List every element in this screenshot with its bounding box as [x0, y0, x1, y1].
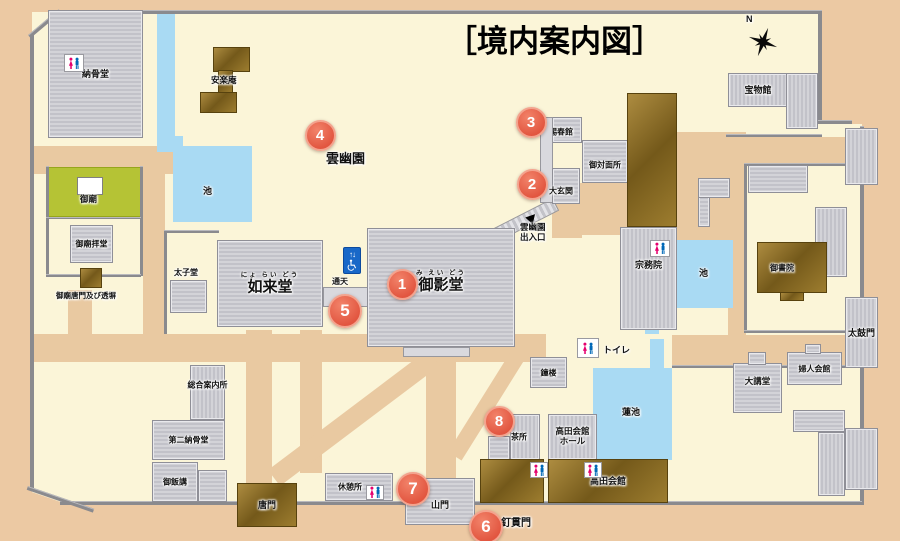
- label-compass-n: N: [746, 14, 753, 25]
- chadokoro-annex: [488, 436, 510, 460]
- pond-west: [173, 146, 252, 222]
- wall-west: [30, 34, 34, 489]
- kyukeisho-rest-area-label: 休憩所: [338, 482, 362, 491]
- takada-kaikan: 高田会館: [548, 459, 668, 503]
- fence-homotsukan: [726, 134, 822, 137]
- marker-2[interactable]: 2: [517, 169, 548, 200]
- marker-8[interactable]: 8: [484, 406, 515, 437]
- nokotsudo-label: 納骨堂: [82, 69, 109, 79]
- sogo-information: 総合案内所: [190, 365, 225, 420]
- daikodo-entry: [748, 352, 766, 365]
- marker-5[interactable]: 5: [328, 294, 362, 328]
- marker-3[interactable]: 3: [516, 107, 547, 138]
- label-kuginukimon: 釘貫門: [501, 518, 531, 530]
- palace-hall: [627, 93, 677, 227]
- toilet-icon-shumuin: [650, 240, 670, 257]
- daikodo: 大講堂: [733, 363, 782, 413]
- fujin-kaikan-entry: [805, 344, 821, 354]
- takada-kaikan-hall: 高田会館 ホール: [548, 414, 597, 460]
- label-pond-west: 池: [203, 186, 212, 197]
- chadokoro-label: 茶所: [511, 432, 527, 441]
- label-taishido: 太子堂: [174, 268, 198, 278]
- shishunkan: 賜春館: [552, 117, 582, 143]
- label-gobyo-karamon: 御廟唐門及び透塀: [56, 291, 116, 300]
- label-anrakuan: 安楽庵: [211, 75, 237, 85]
- fujin-kaikan: 婦人会館: [787, 352, 842, 385]
- elevator-icon: ↑↓: [343, 247, 361, 274]
- chadokoro: 茶所: [510, 414, 540, 460]
- daigenkan-label: 大玄関: [549, 186, 573, 195]
- se-gate: [845, 428, 878, 490]
- toilet-icon-takada: [584, 462, 602, 478]
- toilet-icon-standalone: [577, 338, 599, 358]
- gotaimensho-label: 御対面所: [589, 160, 621, 169]
- label-gobyo: 御廟: [80, 194, 97, 204]
- wall-top: [57, 10, 820, 14]
- gobyo-karamon-gate: [80, 268, 102, 288]
- gobyo-shrine: [77, 177, 103, 195]
- taikomon-gate-label: 太鼓門: [848, 327, 875, 337]
- goshoin-annex: [780, 292, 804, 301]
- goshoin-label: 御書院: [770, 263, 794, 272]
- nyoraido-label-text: 如来堂: [247, 279, 292, 296]
- mieido-label-text: 御影堂: [418, 277, 463, 294]
- daigenkan: 大玄関: [552, 168, 580, 204]
- toilet-icon-kyukeisho: [366, 485, 384, 500]
- se-annex-right: [818, 432, 845, 496]
- label-tsuten: 通天: [332, 277, 348, 287]
- gohanko-label: 御飯講: [163, 477, 187, 486]
- compass-icon: [744, 22, 782, 62]
- nyoraido: にょ らい どう如来堂: [217, 240, 323, 327]
- mieido-porch: [403, 347, 470, 357]
- label-unyuen-garden: 雲幽園: [326, 151, 365, 167]
- label-unyuen-exit: 雲幽園 出入口: [520, 222, 546, 242]
- nokotsudo: 納骨堂: [48, 10, 143, 138]
- marker-4[interactable]: 4: [305, 120, 336, 151]
- temple-grounds-map: ［境内案内図］ 納骨堂宝物館御廟拝堂にょ らい どう如来堂み えい どう御影堂賜…: [0, 0, 900, 541]
- page-title: ［境内案内図］: [446, 16, 663, 61]
- gobyo-worship-hall: 御廟拝堂: [70, 225, 113, 263]
- homotsukan-wing: [786, 73, 818, 129]
- gotaimensho: 御対面所: [582, 140, 628, 183]
- daini-nokotsudo-label: 第二納骨堂: [169, 435, 209, 444]
- sanmon-gate-label: 山門: [431, 499, 449, 509]
- lotus-channel: [650, 339, 664, 370]
- small-hall: [198, 470, 227, 502]
- label-pond-east: 池: [699, 268, 708, 279]
- takada-kaikan-hall-label: 高田会館 ホール: [555, 427, 589, 447]
- label-hasuike: 蓮池: [622, 407, 640, 418]
- daini-nokotsudo: 第二納骨堂: [152, 420, 225, 460]
- nyoraido-label: にょ らい どう如来堂: [241, 271, 300, 296]
- gohanko: 御飯講: [152, 462, 198, 502]
- marker-6[interactable]: 6: [469, 510, 503, 541]
- shumuin-label: 宗務院: [635, 259, 662, 269]
- fujin-kaikan-label: 婦人会館: [799, 364, 831, 373]
- wall-ne-horizontal: [818, 120, 852, 124]
- ne-corridor-horizontal: [698, 178, 730, 198]
- karamon-gate: 唐門: [237, 483, 297, 527]
- label-toilet: トイレ: [603, 345, 630, 356]
- outside-ne-corner: [820, 12, 862, 124]
- toilet-icon-nokotsudo: [64, 54, 84, 72]
- canal: [157, 12, 175, 138]
- karamon-gate-label: 唐門: [258, 500, 276, 510]
- goshoin: 御書院: [757, 242, 827, 293]
- wall-gobyo-west: [46, 166, 49, 276]
- daikodo-label: 大講堂: [745, 377, 771, 387]
- se-annex-top: [793, 410, 845, 432]
- marker-1[interactable]: 1: [387, 269, 418, 300]
- wall-ne-vertical: [818, 10, 822, 122]
- shoro-bell-tower: 鐘楼: [530, 357, 567, 388]
- anrakuan-north: [213, 47, 250, 72]
- homotsukan-label: 宝物館: [744, 85, 771, 95]
- wall-taishido-north: [164, 230, 219, 233]
- gobyo-worship-hall-label: 御廟拝堂: [76, 239, 108, 248]
- wall-ne-compound-west: [744, 163, 747, 333]
- ne-gate: [845, 128, 878, 185]
- taikomon-gate: 太鼓門: [845, 297, 878, 368]
- toilet-icon-takada-west: [530, 462, 548, 478]
- wall-taishido-west: [164, 230, 167, 334]
- sogo-information-label: 総合案内所: [188, 380, 228, 389]
- wall-gobyo-east: [140, 166, 143, 276]
- taishido: [170, 280, 207, 313]
- anrakuan-south: [200, 92, 237, 113]
- ne-hall-north: [748, 165, 808, 193]
- shoro-bell-tower-label: 鐘楼: [541, 368, 557, 377]
- road-west-vertical: [143, 148, 165, 338]
- homotsukan: 宝物館: [728, 73, 788, 107]
- marker-7[interactable]: 7: [396, 472, 430, 506]
- mieido-label: み えい どう御影堂: [416, 269, 466, 294]
- wall-gobyo-mid: [46, 217, 141, 219]
